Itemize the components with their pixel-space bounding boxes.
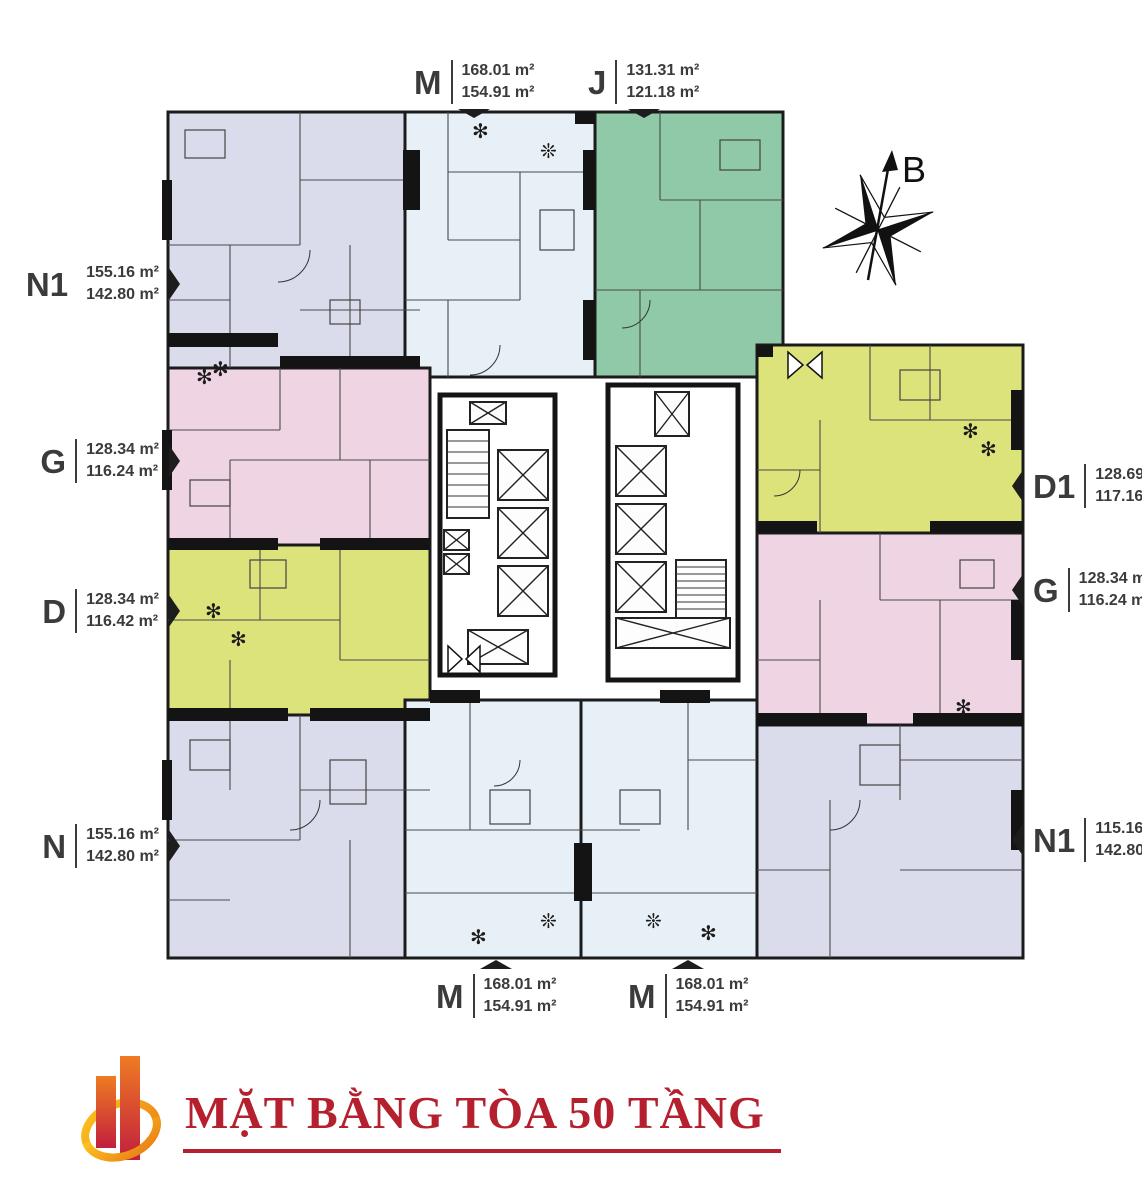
unit-area-net: 154.91 m² — [676, 996, 749, 1018]
unit-letter: G — [1033, 574, 1059, 607]
unit-area-gross: 128.34 m² — [1079, 568, 1142, 590]
unit-area-gross: 168.01 m² — [676, 974, 749, 996]
unit-label-N1-left: N1 155.16 m²142.80 m² — [28, 262, 180, 306]
unit-area-gross: 168.01 m² — [484, 974, 557, 996]
label-divider — [451, 60, 453, 104]
pointer-up-icon — [672, 960, 704, 969]
plant-icon: ✻ — [955, 695, 972, 719]
page-title: MẶT BẰNG TÒA 50 TẦNG — [183, 1086, 781, 1153]
pointer-left-icon — [1012, 574, 1023, 606]
unit-letter: M — [414, 66, 442, 99]
unit-area-net: 117.16 m² — [1095, 486, 1142, 508]
unit-D-left — [168, 545, 430, 715]
staircase — [676, 560, 726, 618]
label-divider — [75, 439, 77, 483]
compass-label: B — [902, 149, 926, 190]
unit-area-gross: 131.31 m² — [626, 60, 699, 82]
label-divider — [665, 974, 667, 1018]
unit-label-D1-right: D1 128.69 m²117.16 m² — [1012, 464, 1142, 508]
unit-area-net: 142.80 m² — [86, 846, 159, 868]
plant-icon: ✻ — [470, 925, 487, 949]
service-core — [440, 385, 738, 680]
plant-icon: ✻ — [212, 357, 229, 381]
unit-letter: N — [42, 830, 66, 863]
unit-area-net: 116.24 m² — [86, 461, 159, 483]
unit-label-M-bottom-left: M 168.01 m²154.91 m² — [436, 960, 556, 1018]
unit-area-gross: 115.16 m² — [1095, 818, 1142, 840]
unit-G-left — [168, 368, 430, 545]
unit-area-gross: 168.01 m² — [462, 60, 535, 82]
label-divider — [75, 589, 77, 633]
label-divider — [1084, 464, 1086, 508]
label-divider — [75, 824, 77, 868]
unit-label-G-left: G 128.34 m²116.24 m² — [28, 439, 180, 483]
unit-letter: D1 — [1033, 470, 1075, 503]
tree-icon: ❊ — [540, 909, 557, 933]
unit-letter: N1 — [26, 268, 68, 301]
label-divider — [1068, 568, 1070, 612]
label-divider — [473, 974, 475, 1018]
unit-label-D-left: D 128.34 m²116.42 m² — [28, 589, 180, 633]
unit-area-net: 142.80 m² — [1095, 840, 1142, 862]
unit-J-top — [595, 112, 783, 377]
unit-label-M-bottom-right: M 168.01 m²154.91 m² — [628, 960, 748, 1018]
staircase — [447, 430, 489, 518]
unit-M-bottom-right — [581, 700, 757, 958]
label-divider — [615, 60, 617, 104]
pointer-right-icon — [169, 830, 180, 862]
compass-north-indicator: B — [805, 149, 951, 303]
plant-icon: ✻ — [700, 921, 717, 945]
unit-letter: D — [42, 595, 66, 628]
unit-label-N-left: N 155.16 m²142.80 m² — [28, 824, 180, 868]
logo-building-bar — [96, 1076, 116, 1148]
unit-label-M-top: M 168.01 m²154.91 m² — [414, 60, 534, 118]
plant-icon: ✻ — [980, 437, 997, 461]
label-divider — [1084, 818, 1086, 862]
plant-icon: ✻ — [230, 627, 247, 651]
pointer-right-icon — [169, 445, 180, 477]
floorplan-page: ✻ ❊ ✻ ✻ ✻ ✻ ❊ ❊ ✻ ✻ ✻ ✻ ✻ — [0, 0, 1142, 1200]
unit-letter: M — [628, 980, 656, 1013]
plant-icon: ✻ — [962, 419, 979, 443]
unit-letter: N1 — [1033, 824, 1075, 857]
unit-area-gross: 128.34 m² — [86, 589, 159, 611]
pointer-right-icon — [169, 268, 180, 300]
unit-N1-top-left — [168, 112, 420, 368]
pointer-down-icon — [458, 109, 490, 118]
pointer-up-icon — [480, 960, 512, 969]
unit-area-gross: 128.69 m² — [1095, 464, 1142, 486]
pointer-left-icon — [1012, 824, 1023, 856]
unit-area-net: 116.42 m² — [86, 611, 159, 633]
tree-icon: ❊ — [540, 139, 557, 163]
company-logo — [77, 1056, 164, 1167]
unit-N-bottom-left — [168, 715, 430, 958]
unit-area-gross: 128.34 m² — [86, 439, 159, 461]
unit-area-net: 154.91 m² — [462, 82, 535, 104]
unit-letter: J — [588, 66, 606, 99]
unit-area-net: 121.18 m² — [626, 82, 699, 104]
unit-label-N1-right: N1 115.16 m²142.80 m² — [1012, 818, 1142, 862]
logo-building-bar — [120, 1056, 140, 1160]
unit-area-gross: 155.16 m² — [86, 262, 159, 284]
unit-letter: G — [40, 445, 66, 478]
unit-label-G-right: G 128.34 m²116.24 m² — [1012, 568, 1142, 612]
unit-G-right — [757, 533, 1023, 725]
pointer-down-icon — [628, 109, 660, 118]
tree-icon: ❊ — [645, 909, 662, 933]
unit-M-top — [405, 112, 595, 377]
unit-area-gross: 155.16 m² — [86, 824, 159, 846]
unit-area-net: 154.91 m² — [484, 996, 557, 1018]
pointer-right-icon — [169, 595, 180, 627]
plant-icon: ✻ — [472, 119, 489, 143]
plant-icon: ✻ — [196, 365, 213, 389]
unit-area-net: 142.80 m² — [86, 284, 159, 306]
unit-area-net: 116.24 m² — [1079, 590, 1142, 612]
unit-letter: M — [436, 980, 464, 1013]
plant-icon: ✻ — [205, 599, 222, 623]
pointer-left-icon — [1012, 470, 1023, 502]
unit-label-J-top: J 131.31 m²121.18 m² — [588, 60, 699, 118]
